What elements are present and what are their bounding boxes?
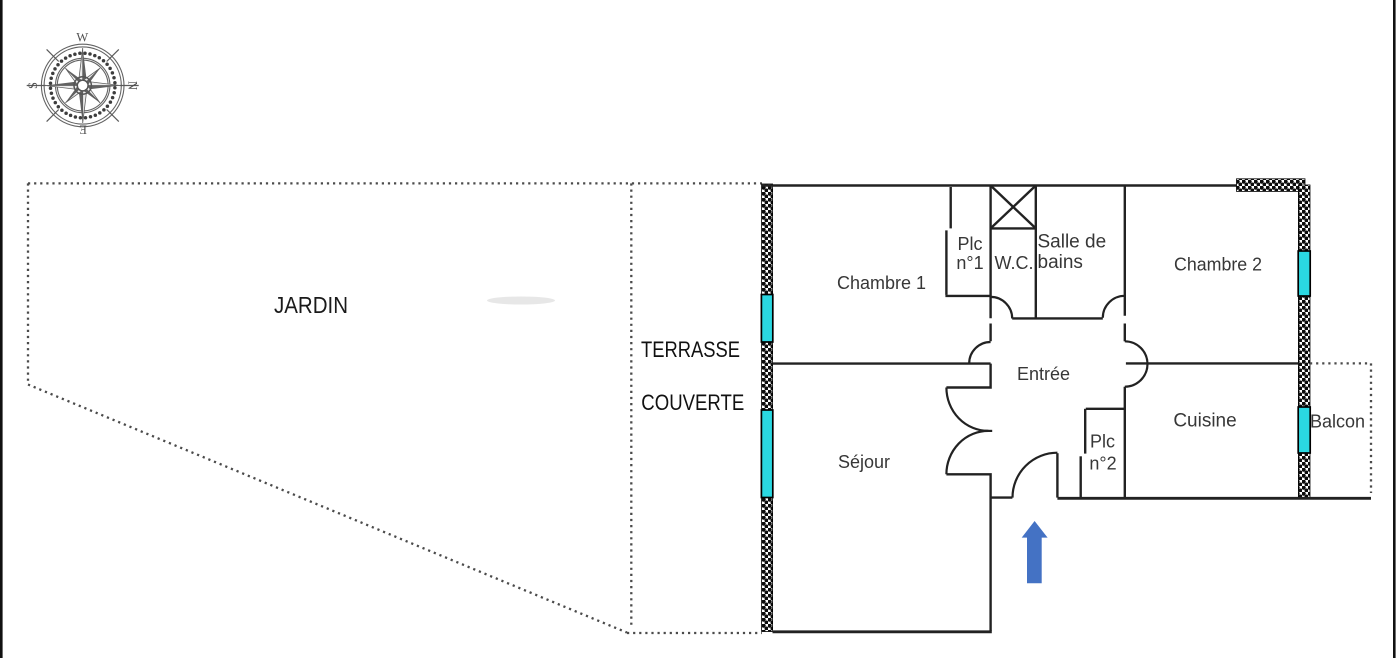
svg-text:Séjour: Séjour	[838, 452, 890, 472]
svg-text:S: S	[26, 82, 40, 89]
svg-text:Salle de: Salle de	[1038, 232, 1107, 253]
svg-text:Chambre 2: Chambre 2	[1174, 255, 1262, 275]
svg-text:COUVERTE: COUVERTE	[641, 390, 744, 415]
svg-text:TERRASSE: TERRASSE	[641, 337, 740, 362]
svg-text:Chambre 1: Chambre 1	[837, 273, 926, 293]
svg-text:N: N	[125, 81, 139, 90]
svg-text:E: E	[79, 123, 87, 137]
svg-text:JARDIN: JARDIN	[274, 292, 348, 318]
svg-text:Entrée: Entrée	[1017, 364, 1070, 384]
svg-text:Cuisine: Cuisine	[1173, 411, 1236, 432]
svg-text:Plc: Plc	[957, 234, 982, 254]
svg-text:W.C.: W.C.	[995, 253, 1034, 273]
svg-text:W: W	[76, 31, 88, 45]
svg-text:Balcon: Balcon	[1310, 412, 1365, 432]
svg-text:Plc: Plc	[1090, 432, 1115, 452]
svg-text:n°2: n°2	[1089, 454, 1116, 474]
svg-text:bains: bains	[1038, 252, 1083, 273]
svg-text:n°1: n°1	[956, 253, 983, 273]
